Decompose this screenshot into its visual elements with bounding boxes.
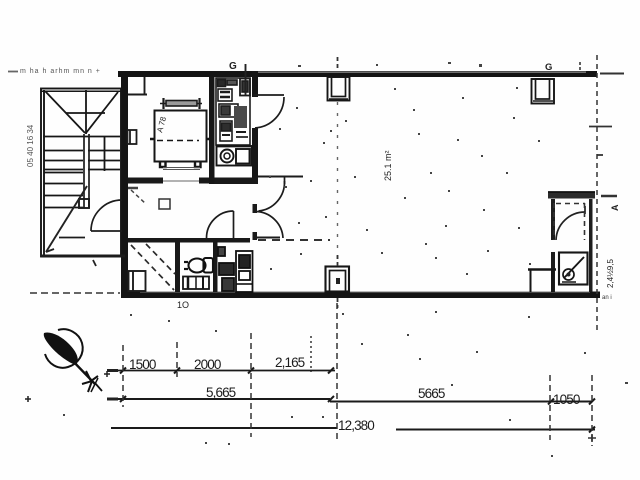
svg-text:5,665: 5,665 (206, 385, 236, 400)
svg-text:2,165: 2,165 (275, 355, 305, 370)
svg-text:A: A (610, 204, 620, 211)
svg-text:an i: an i (602, 295, 612, 301)
svg-text:12,380: 12,380 (338, 418, 374, 433)
svg-text:G: G (545, 62, 552, 73)
svg-text:25.1 m²: 25.1 m² (383, 150, 393, 181)
svg-text:1O: 1O (177, 300, 189, 310)
svg-text:05 40 16 34: 05 40 16 34 (26, 124, 35, 167)
svg-text:m ha h arhm mn n +: m ha h arhm mn n + (20, 68, 101, 75)
svg-text:2000: 2000 (194, 357, 221, 372)
svg-text:1050: 1050 (553, 392, 580, 407)
svg-text:1500: 1500 (129, 357, 156, 372)
svg-text:2,4½9,5: 2,4½9,5 (606, 259, 615, 288)
svg-text:G: G (229, 61, 237, 72)
svg-text:5665: 5665 (418, 386, 445, 401)
